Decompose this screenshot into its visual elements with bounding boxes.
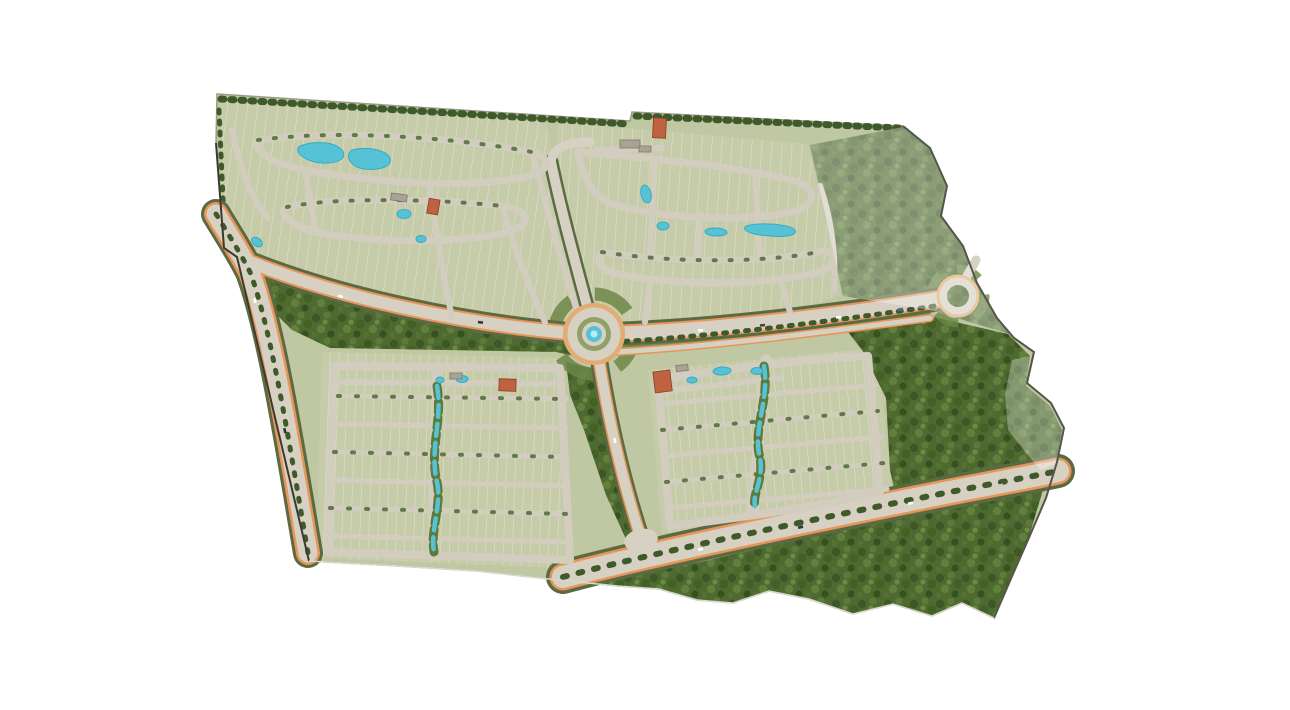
screenshot-canvas: [0, 0, 1290, 710]
se-tennis-court: [653, 370, 672, 393]
car: [760, 324, 765, 327]
car: [478, 321, 483, 324]
ne-tennis-court: [652, 118, 666, 139]
car: [698, 329, 703, 332]
sw-amenity-street: [336, 382, 560, 384]
sw-amenity-pool-2: [436, 377, 444, 383]
nw-tennis-court: [427, 198, 440, 215]
nw-amenity-pool: [397, 210, 411, 219]
site-plan-map: [0, 0, 1290, 710]
se-pool-3: [687, 377, 697, 383]
ne-clubhouse: [620, 140, 640, 148]
sw-clubhouse: [450, 373, 462, 379]
car: [836, 316, 841, 319]
ne-connector-street-4: [698, 214, 700, 260]
ne-pond-2: [657, 222, 669, 230]
ne-clubhouse-wing: [639, 146, 651, 152]
nw-amenity-pool-small: [416, 236, 426, 243]
central-roundabout-fountain-center: [591, 331, 598, 338]
sw-tennis-court: [499, 379, 516, 392]
se-clubhouse: [676, 364, 689, 371]
se-pool-2: [751, 368, 763, 375]
